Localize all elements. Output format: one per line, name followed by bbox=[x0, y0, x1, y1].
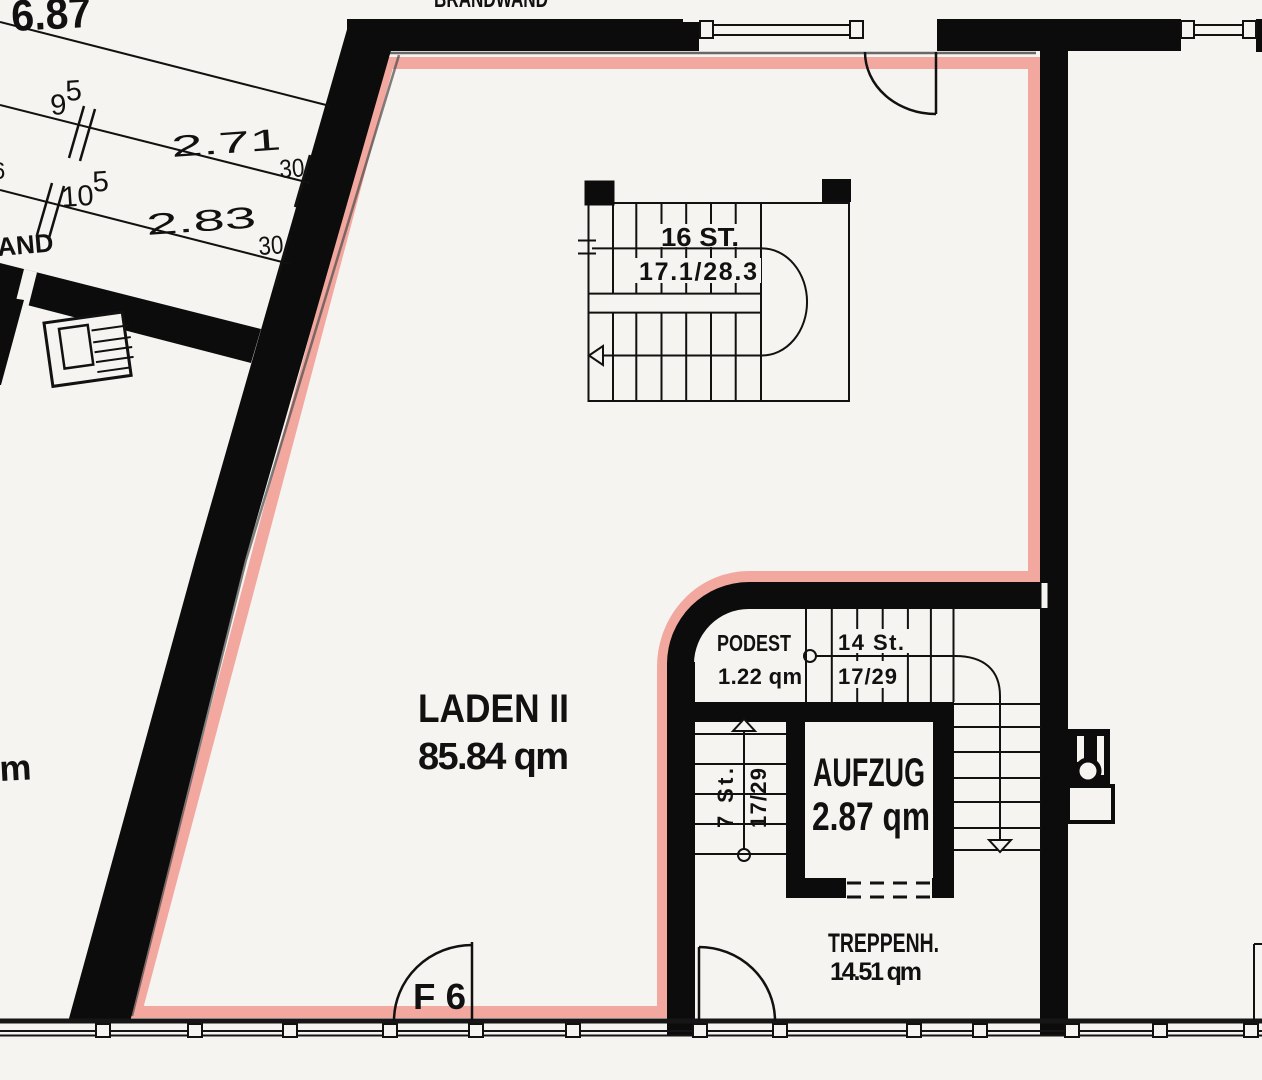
svg-text:TREPPENH.: TREPPENH. bbox=[828, 928, 939, 958]
svg-text:16 ST.: 16 ST. bbox=[661, 222, 739, 252]
svg-text:BRANDWAND: BRANDWAND bbox=[434, 0, 548, 13]
svg-text:30: 30 bbox=[257, 229, 284, 261]
svg-text:AUFZUG: AUFZUG bbox=[813, 751, 925, 795]
svg-text:PODEST: PODEST bbox=[717, 630, 791, 656]
svg-text:AND: AND bbox=[0, 227, 55, 262]
svg-text:2.87 qm: 2.87 qm bbox=[812, 795, 930, 839]
svg-text:17.1/28.3: 17.1/28.3 bbox=[639, 258, 757, 286]
svg-text:m: m bbox=[0, 746, 32, 789]
svg-text:6: 6 bbox=[0, 158, 5, 185]
svg-text:14.51 qm: 14.51 qm bbox=[830, 958, 922, 986]
svg-text:LADEN II: LADEN II bbox=[418, 687, 569, 731]
svg-text:14 St.: 14 St. bbox=[838, 630, 904, 655]
svg-text:1.22 qm: 1.22 qm bbox=[718, 664, 802, 689]
svg-text:17/29: 17/29 bbox=[746, 768, 771, 828]
svg-text:6.87: 6.87 bbox=[10, 0, 92, 41]
svg-text:17/29: 17/29 bbox=[838, 664, 897, 689]
svg-text:30: 30 bbox=[278, 152, 305, 184]
svg-text:85.84 qm: 85.84 qm bbox=[418, 736, 569, 778]
svg-text:F 6: F 6 bbox=[413, 976, 466, 1017]
